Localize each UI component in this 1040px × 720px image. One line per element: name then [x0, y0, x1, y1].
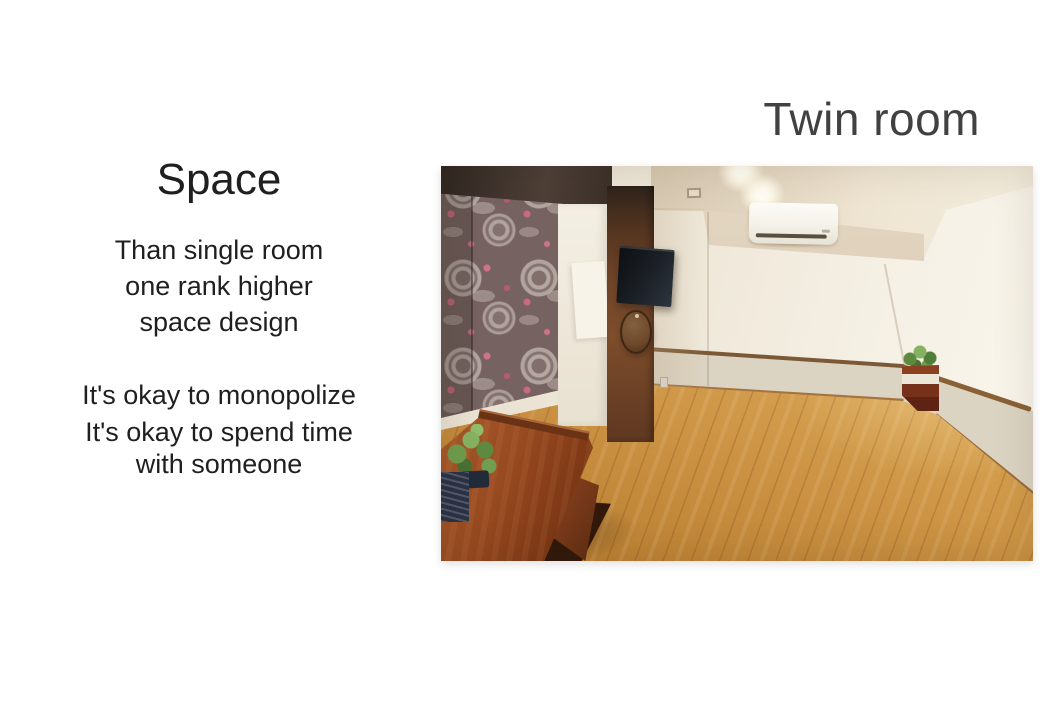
paragraph-okay-statements: It's okay to monopolize It's okay to spe…: [37, 377, 401, 477]
text-line: It's okay to monopolize: [37, 377, 401, 414]
photo-fabric-item: [441, 472, 469, 522]
room-photo: [441, 166, 1033, 561]
photo-ceiling-vent: [687, 188, 701, 198]
slide-canvas: Twin room Space Than single room one ran…: [0, 0, 1040, 720]
text-line: one rank higher: [37, 268, 401, 304]
photo-ac-logo: [822, 230, 830, 233]
text-line: space design: [37, 304, 401, 340]
photo-round-mirror: [620, 310, 652, 354]
photo-tv: [616, 246, 674, 307]
photo-air-conditioner: [749, 202, 839, 245]
photo-floral-curtain: [441, 166, 559, 418]
photo-curtain-left-panel: [441, 166, 472, 418]
photo-desk-plant: [443, 424, 503, 478]
paragraph-space-description: Than single room one rank higher space d…: [37, 232, 401, 340]
photo-leaning-board: [571, 261, 609, 339]
section-heading: Space: [37, 154, 401, 206]
slide-title: Twin room: [763, 92, 980, 146]
photo-wall-outlet: [660, 377, 668, 388]
photo-ac-vent: [756, 233, 827, 238]
text-line: It's okay to spend time: [37, 414, 401, 451]
photo-mirror-knob: [635, 314, 639, 318]
photo-curtain-seam: [471, 166, 473, 418]
text-line: with someone: [37, 451, 401, 477]
text-line: Than single room: [37, 232, 401, 268]
left-text-panel: Space Than single room one rank higher s…: [37, 0, 401, 720]
